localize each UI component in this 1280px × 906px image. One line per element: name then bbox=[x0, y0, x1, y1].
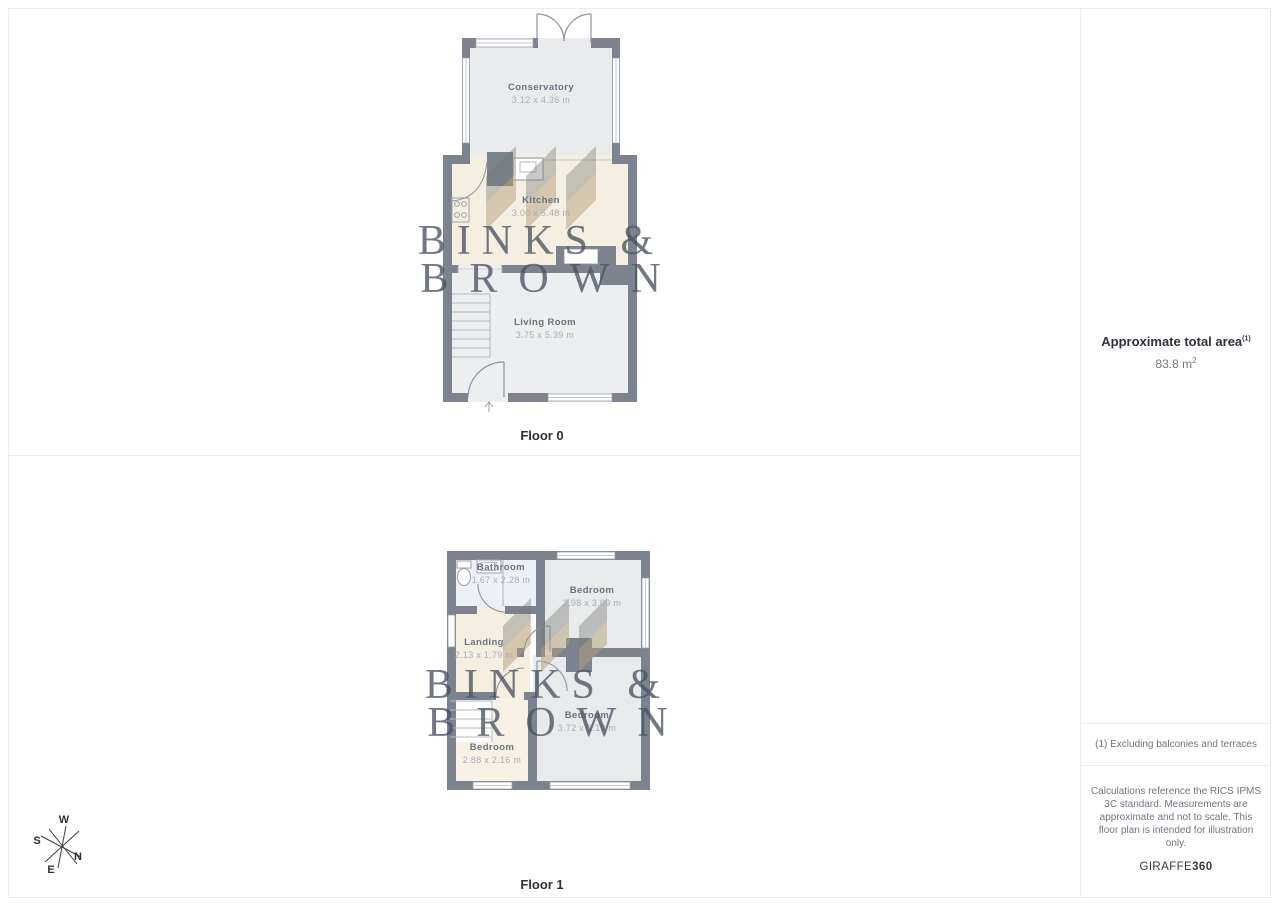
floor1-label: Floor 1 bbox=[442, 877, 642, 892]
giraffe360-logo: GIRAFFE360 bbox=[1081, 861, 1271, 873]
toilet-icon bbox=[457, 561, 471, 586]
total-area-title: Approximate total area(1) bbox=[1081, 334, 1271, 349]
compass-s-label: S bbox=[33, 835, 40, 847]
floorplan-page: W S N E Conservatory 3.12 x 4.36 m Kitch… bbox=[0, 0, 1280, 906]
entrance-arrow-icon bbox=[485, 402, 493, 412]
stairwell-floor1 bbox=[450, 700, 493, 742]
compass-w-label: W bbox=[59, 814, 70, 826]
bedroom-br-floor bbox=[533, 655, 643, 783]
compass-n-label: N bbox=[74, 851, 82, 863]
panel-footnote: (1) Excluding balconies and terraces bbox=[1090, 738, 1262, 751]
compass-rose: W S N E bbox=[33, 814, 82, 876]
floorplan-graphics: W S N E bbox=[0, 0, 1280, 906]
panel-disclaimer: Calculations reference the RICS IPMS 3C … bbox=[1090, 785, 1262, 850]
total-area-value: 83.8 m2 bbox=[1081, 356, 1271, 371]
bathroom-sink-icon bbox=[477, 560, 501, 573]
conservatory-floor bbox=[462, 38, 620, 163]
floor1-plan bbox=[447, 551, 650, 790]
floor0-label: Floor 0 bbox=[442, 428, 642, 443]
compass-e-label: E bbox=[47, 864, 54, 876]
fireplace-icon bbox=[564, 249, 598, 264]
footnote-marker: (1) bbox=[1242, 336, 1251, 343]
